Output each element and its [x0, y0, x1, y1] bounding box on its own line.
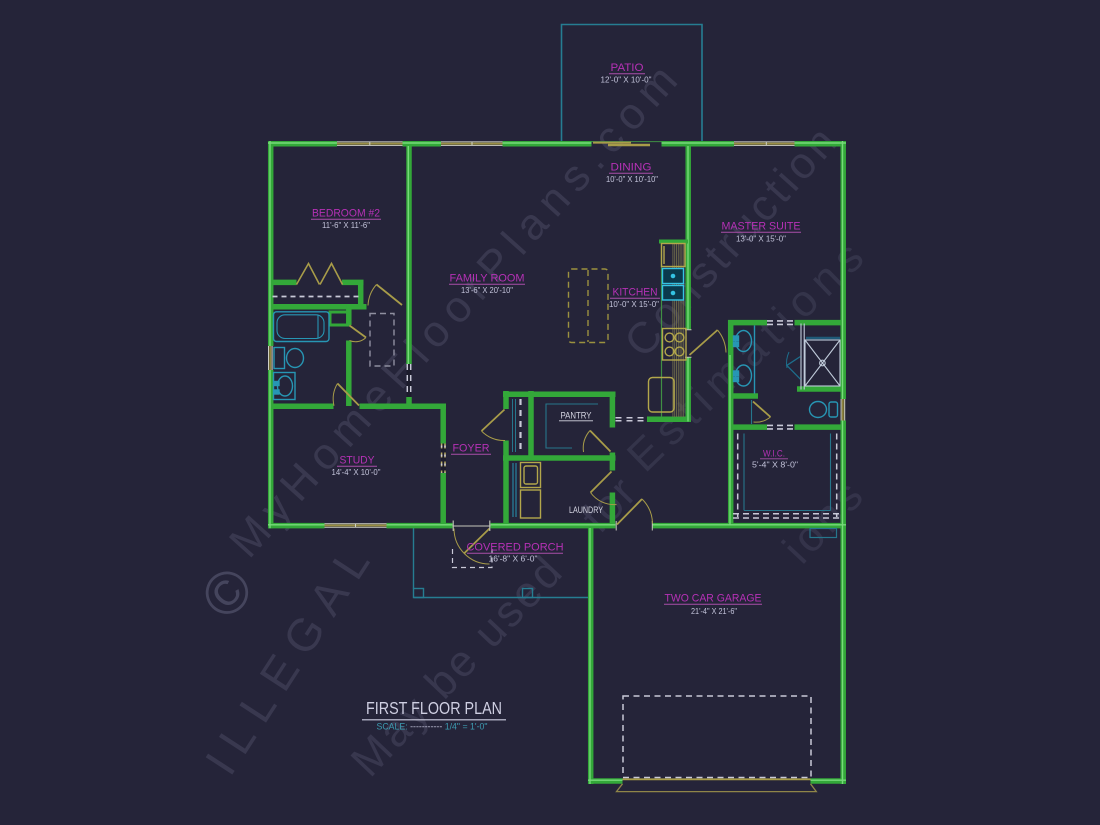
svg-text:KITCHEN: KITCHEN [613, 287, 658, 299]
svg-text:BEDROOM #2: BEDROOM #2 [312, 208, 380, 220]
svg-text:FOYER: FOYER [453, 443, 490, 455]
svg-text:10'-0" X 10'-10": 10'-0" X 10'-10" [606, 175, 658, 184]
svg-text:21'-4" X 21'-6": 21'-4" X 21'-6" [691, 607, 737, 616]
svg-text:FAMILY ROOM: FAMILY ROOM [450, 273, 525, 285]
svg-text:COVERED PORCH: COVERED PORCH [467, 542, 564, 554]
svg-text:LAUNDRY: LAUNDRY [569, 505, 603, 515]
svg-text:STUDY: STUDY [340, 455, 376, 467]
svg-text:13'-6" X 20'-10": 13'-6" X 20'-10" [461, 286, 513, 295]
svg-text:W.I.C.: W.I.C. [763, 449, 785, 460]
svg-text:FIRST FLOOR PLAN: FIRST FLOOR PLAN [366, 698, 502, 718]
svg-text:PANTRY: PANTRY [561, 411, 592, 421]
svg-text:16'-8" X 6'-0": 16'-8" X 6'-0" [489, 555, 538, 564]
svg-text:5'-4" X 8'-0": 5'-4" X 8'-0" [752, 461, 798, 470]
svg-text:12'-0" X 10'-0": 12'-0" X 10'-0" [601, 76, 652, 85]
svg-text:SCALE: ----------- 1/4" = 1'-0: SCALE: ----------- 1/4" = 1'-0" [377, 722, 488, 732]
svg-text:May be used: May be used [342, 545, 574, 785]
svg-text:11'-6" X 11'-6": 11'-6" X 11'-6" [322, 221, 370, 230]
svg-text:MASTER SUITE: MASTER SUITE [722, 221, 801, 233]
svg-text:DINING: DINING [611, 162, 652, 174]
svg-text:ions: ions [773, 469, 875, 573]
svg-text:14'-4" X 10'-0": 14'-4" X 10'-0" [332, 468, 381, 477]
svg-text:10'-0" X 15'-0": 10'-0" X 15'-0" [609, 300, 659, 309]
svg-text:PATIO: PATIO [611, 62, 644, 74]
svg-text:TWO CAR GARAGE: TWO CAR GARAGE [665, 593, 762, 605]
svg-text:13'-0" X 15'-0": 13'-0" X 15'-0" [736, 235, 786, 244]
